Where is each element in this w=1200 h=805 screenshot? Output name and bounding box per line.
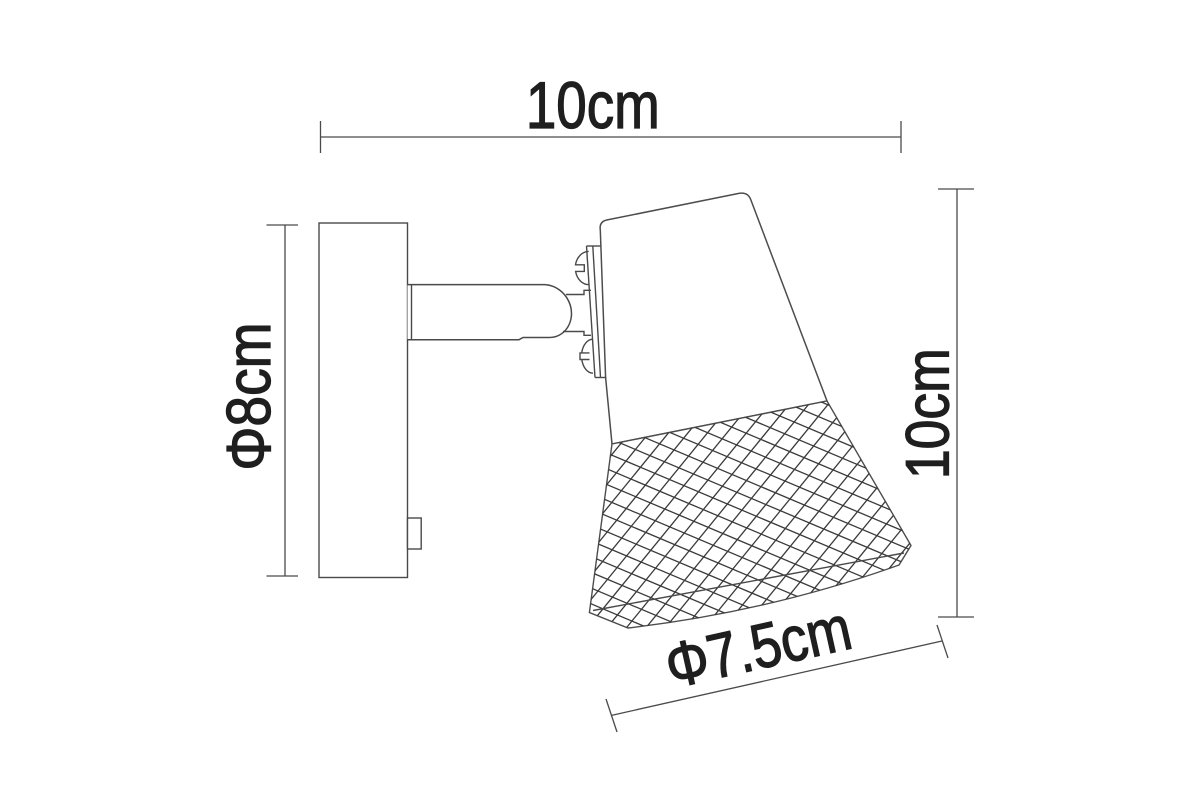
svg-text:Φ8cm: Φ8cm [215, 322, 284, 470]
svg-text:10cm: 10cm [894, 348, 962, 479]
svg-text:10cm: 10cm [526, 68, 660, 142]
